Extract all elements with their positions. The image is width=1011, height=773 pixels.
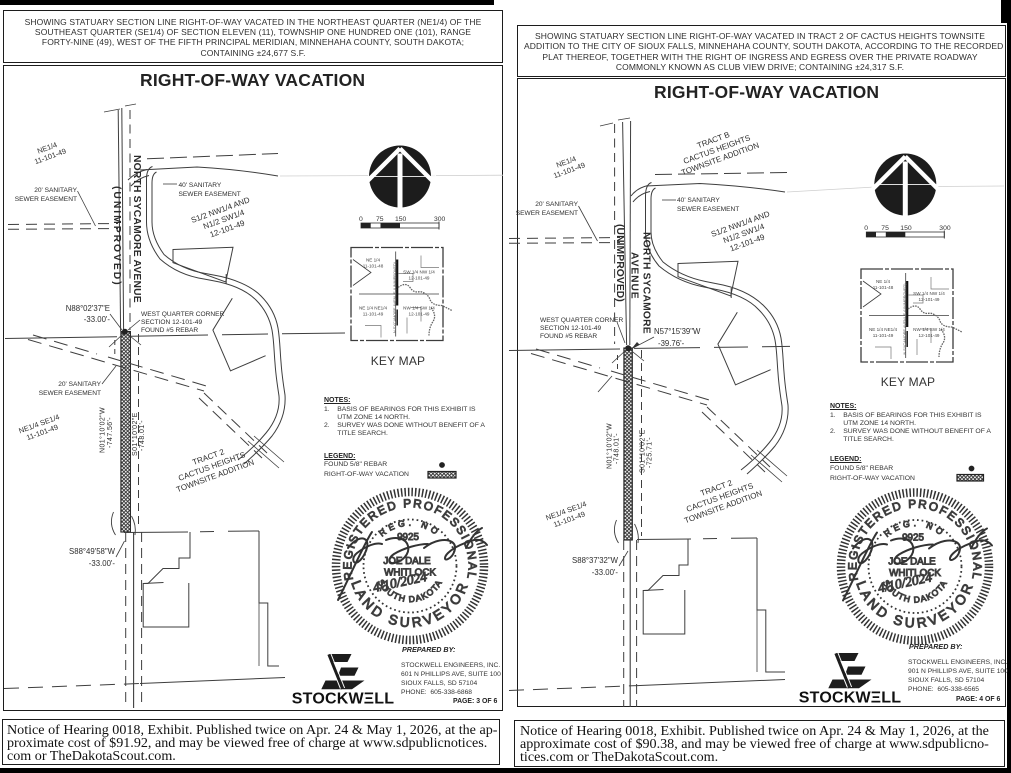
svg-text:SEWER EASEMENT: SEWER EASEMENT <box>39 390 101 397</box>
svg-text:FOUND #5 REBAR: FOUND #5 REBAR <box>540 333 597 340</box>
svg-text:-748.01'-: -748.01'- <box>139 420 146 451</box>
svg-text:SECTION 12-101-49: SECTION 12-101-49 <box>540 325 602 332</box>
svg-text:WEST QUARTER CORNER: WEST QUARTER CORNER <box>540 317 624 324</box>
svg-text:-33.00'-: -33.00'- <box>84 315 111 324</box>
svg-text:-39.76'-: -39.76'- <box>658 339 685 348</box>
svg-text:-33.00'-: -33.00'- <box>592 568 619 577</box>
svg-text:S88°49'58"W: S88°49'58"W <box>69 547 116 556</box>
svg-text:40' SANITARY: 40' SANITARY <box>179 182 222 189</box>
svg-text:(UNIMPROVED): (UNIMPROVED) <box>111 186 122 287</box>
svg-text:20' SANITARY: 20' SANITARY <box>535 201 578 208</box>
svg-text:FOUND #5 REBAR: FOUND #5 REBAR <box>141 327 198 334</box>
svg-text:AVENUE: AVENUE <box>629 252 640 300</box>
svg-text:40' SANITARY: 40' SANITARY <box>677 197 720 204</box>
svg-text:20' SANITARY: 20' SANITARY <box>34 187 77 194</box>
svg-text:-725.71'-: -725.71'- <box>647 437 654 468</box>
svg-text:N88°02'37"E: N88°02'37"E <box>66 304 110 313</box>
svg-text:KEY MAP: KEY MAP <box>371 354 426 368</box>
svg-text:NORTH SYCAMORE AVENUE: NORTH SYCAMORE AVENUE <box>131 155 142 303</box>
svg-text:S88°37'32"W: S88°37'32"W <box>572 556 619 565</box>
svg-text:SEWER EASEMENT: SEWER EASEMENT <box>179 191 241 198</box>
svg-text:N57°15'39"W: N57°15'39"W <box>654 327 701 336</box>
svg-text:SECTION 12-101-49: SECTION 12-101-49 <box>141 319 203 326</box>
svg-text:WEST QUARTER CORNER: WEST QUARTER CORNER <box>141 311 225 318</box>
svg-text:(UNIMPROVED): (UNIMPROVED) <box>614 224 625 302</box>
svg-text:NORTH SYCAMORE: NORTH SYCAMORE <box>641 232 652 334</box>
svg-text:-33.00'-: -33.00'- <box>89 559 116 568</box>
svg-text:-748.01'-: -748.01'- <box>614 433 621 464</box>
svg-text:SEWER EASEMENT: SEWER EASEMENT <box>15 196 77 203</box>
svg-text:N01°10'02"W: N01°10'02"W <box>606 423 614 469</box>
svg-text:N01°10'02"W: N01°10'02"W <box>99 407 107 453</box>
svg-text:KEY MAP: KEY MAP <box>881 375 936 389</box>
svg-text:-747.56'-: -747.56'- <box>107 417 114 448</box>
svg-text:20' SANITARY: 20' SANITARY <box>58 381 101 388</box>
svg-text:S01°10'02"E: S01°10'02"E <box>131 412 139 456</box>
svg-text:SEWER EASEMENT: SEWER EASEMENT <box>677 206 739 213</box>
svg-text:SEWER EASEMENT: SEWER EASEMENT <box>516 210 578 217</box>
svg-text:S01°10'02"E: S01°10'02"E <box>639 429 647 473</box>
